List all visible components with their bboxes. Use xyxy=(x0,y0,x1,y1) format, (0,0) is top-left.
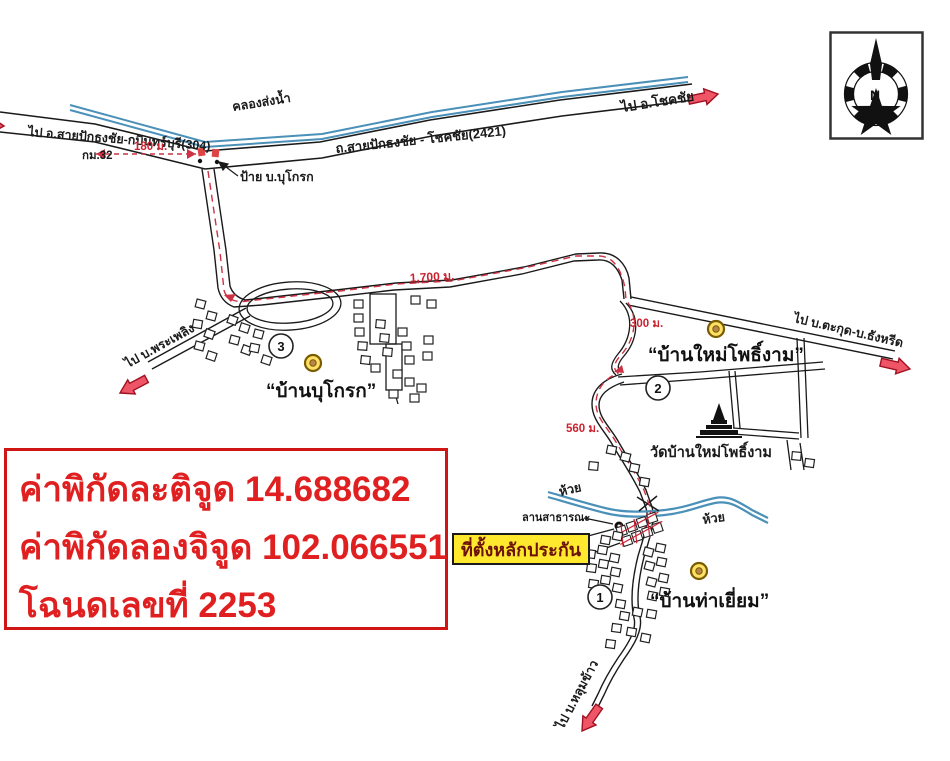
house-square xyxy=(194,341,205,351)
house-square xyxy=(227,315,238,326)
house-square xyxy=(405,356,414,364)
house-square xyxy=(646,577,657,587)
label-sign-bukrok: ป้าย บ.บุโกรก xyxy=(240,169,314,185)
house-square xyxy=(376,320,386,329)
label-village-bukrok: “บ้านบุโกรก” xyxy=(266,379,376,403)
circled-marker-3: 3 xyxy=(269,334,293,358)
house-square xyxy=(393,370,402,378)
house-square xyxy=(589,462,599,471)
house-square xyxy=(253,329,264,339)
deed-line: โฉนดเลขที่ 2253 xyxy=(19,577,445,635)
house-square xyxy=(427,300,436,308)
house-square xyxy=(612,531,622,541)
house-square xyxy=(204,329,215,340)
circled-marker-2: 2 xyxy=(646,376,670,400)
svg-text:2: 2 xyxy=(654,381,661,396)
house-square xyxy=(597,545,607,554)
latitude-line: ค่าพิกัดละติจูด 14.688682 xyxy=(19,461,445,519)
label-to-lumkhao: ไป บ.หลุมข้าว xyxy=(551,657,602,733)
house-square xyxy=(626,627,636,636)
map-canvas: 3 2 1 N ไป อ.สายปักธงชัย-กบินทร์บุรี(304… xyxy=(0,0,950,761)
collateral-site-label: ที่ตั้งหลักประกัน xyxy=(452,533,590,565)
house-square xyxy=(405,378,414,386)
house-square xyxy=(239,323,250,333)
house-square xyxy=(610,567,620,577)
label-to-phraphloeng: ไป บ.พระเพลิง xyxy=(120,320,196,371)
house-square xyxy=(206,311,217,321)
label-d1700: 1,700 ม. xyxy=(409,269,454,285)
longitude-line: ค่าพิกัดลองจิจูด 102.066551 xyxy=(19,519,445,577)
house-square xyxy=(598,559,608,568)
label-d560: 560 ม. xyxy=(566,423,599,435)
compass-rose: N xyxy=(831,33,923,139)
house-square xyxy=(410,394,419,402)
svg-text:1: 1 xyxy=(596,590,603,605)
house-square xyxy=(417,384,426,392)
house-square xyxy=(600,575,610,584)
label-to-304: ไป อ.สายปักธงชัย-กบินทร์บุรี(304) xyxy=(26,124,211,154)
village-dot-thayiam xyxy=(691,563,707,579)
house-square xyxy=(402,342,411,350)
label-village-thayiam: “บ้านท่าเยี่ยม” xyxy=(650,587,769,612)
house-square xyxy=(380,334,390,343)
label-village-maipho: “บ้านใหม่โพธิ์งาม” xyxy=(648,340,804,366)
house-square xyxy=(423,352,432,360)
svg-text:3: 3 xyxy=(277,339,284,354)
house-square xyxy=(261,355,272,365)
village-dot-bukrok xyxy=(305,355,321,371)
house-square xyxy=(643,547,654,557)
house-square xyxy=(804,458,814,467)
compass-n-letter: N xyxy=(870,87,880,103)
temple-icon xyxy=(696,403,742,437)
house-square xyxy=(249,343,259,353)
house-square xyxy=(398,328,407,336)
house-square xyxy=(424,336,433,344)
label-to-takut: ไป บ.ตะกุด-บ.ธังหรีด xyxy=(790,310,905,351)
label-km32: กม.32 xyxy=(82,150,113,162)
house-square xyxy=(354,314,363,322)
village-dot-maipho xyxy=(708,321,724,337)
arrow-phraphloeng xyxy=(116,372,150,400)
label-d180: 180 ม. xyxy=(134,141,167,153)
house-square xyxy=(644,561,655,571)
house-square xyxy=(358,342,368,351)
label-canal: คลองส่งน้ำ xyxy=(231,88,292,114)
bridge-marks xyxy=(637,496,659,511)
label-lan-satharana: ลานสาธารณะ xyxy=(522,512,590,524)
house-square xyxy=(655,543,665,553)
house-square xyxy=(206,351,217,361)
label-huai-right: ห้วย xyxy=(701,510,725,527)
house-square xyxy=(611,623,621,632)
house-square xyxy=(354,300,363,308)
house-square xyxy=(192,319,202,328)
house-square xyxy=(632,607,642,617)
house-square xyxy=(658,573,668,583)
house-square xyxy=(609,553,619,563)
label-huai-left: ห้วย xyxy=(558,480,583,499)
house-square xyxy=(606,445,616,455)
house-square xyxy=(639,477,649,486)
circled-marker-1: 1 xyxy=(588,585,612,609)
house-square xyxy=(640,633,650,643)
house-square xyxy=(389,390,398,398)
house-square xyxy=(361,356,371,365)
map-drawing: 3 2 1 N ไป อ.สายปักธงชัย-กบินทร์บุรี(304… xyxy=(0,0,950,761)
house-square xyxy=(619,611,629,620)
house-square xyxy=(792,452,802,461)
house-square xyxy=(229,335,240,345)
house-square xyxy=(600,535,610,544)
house-square xyxy=(615,599,625,608)
house-square xyxy=(383,348,393,357)
house-square xyxy=(411,296,420,304)
sign-leader xyxy=(219,162,238,176)
house-square xyxy=(371,364,380,372)
house-square xyxy=(355,328,364,336)
label-d300: 300 ม. xyxy=(630,318,663,330)
arrow-lumkhao xyxy=(575,702,605,736)
house-square xyxy=(620,452,631,462)
house-square xyxy=(629,463,639,473)
house-square xyxy=(195,299,206,309)
house-square xyxy=(605,639,615,648)
coordinate-info-box: ค่าพิกัดละติจูด 14.688682 ค่าพิกัดลองจิจ… xyxy=(4,448,448,630)
label-temple: วัดบ้านใหม่โพธิ์งาม xyxy=(650,441,772,461)
house-square xyxy=(656,557,666,567)
house-square xyxy=(612,583,622,593)
